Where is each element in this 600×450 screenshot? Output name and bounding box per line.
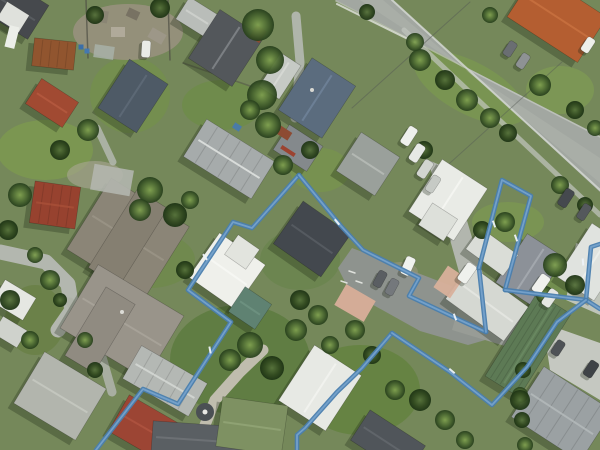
tree <box>321 336 339 354</box>
roof <box>29 181 80 229</box>
tree <box>27 247 43 263</box>
tree <box>8 183 32 207</box>
tree <box>87 362 103 378</box>
tree <box>510 390 530 410</box>
tree <box>77 119 99 141</box>
turret-or-chimney <box>310 88 314 92</box>
car <box>141 40 151 58</box>
aerial-photo <box>0 0 600 450</box>
tree <box>260 356 284 380</box>
tree <box>482 7 498 23</box>
tree <box>409 389 431 411</box>
survey-tick <box>583 259 584 266</box>
tree <box>514 412 530 428</box>
tree <box>435 410 455 430</box>
tree <box>565 275 585 295</box>
turret-or-chimney <box>120 310 124 314</box>
yard-object <box>85 49 90 54</box>
tree <box>308 305 328 325</box>
tree <box>499 124 517 142</box>
tree <box>77 332 93 348</box>
tree <box>129 199 151 221</box>
tree <box>456 89 478 111</box>
tree <box>285 319 307 341</box>
survey-tick <box>209 347 210 354</box>
tree <box>480 108 500 128</box>
tree <box>301 141 319 159</box>
tree <box>50 140 70 160</box>
tree <box>181 191 199 209</box>
tree <box>240 100 260 120</box>
map-viewport[interactable] <box>0 0 600 450</box>
tree <box>237 332 263 358</box>
tree <box>0 290 20 310</box>
tree <box>290 290 310 310</box>
tree <box>163 203 187 227</box>
turret-or-chimney <box>203 410 208 415</box>
roof <box>216 397 288 450</box>
tree <box>219 349 241 371</box>
roof <box>32 38 77 70</box>
tree <box>359 4 375 20</box>
roof-face <box>32 38 77 70</box>
tree <box>176 261 194 279</box>
tree <box>86 6 104 24</box>
yard-object <box>111 27 125 37</box>
tree <box>345 320 365 340</box>
tree <box>456 431 474 449</box>
tree <box>435 70 455 90</box>
tree <box>406 33 424 51</box>
tree <box>566 101 584 119</box>
tree <box>53 293 67 307</box>
tree <box>385 380 405 400</box>
tree <box>409 49 431 71</box>
tree <box>256 46 284 74</box>
tree <box>273 155 293 175</box>
tree <box>255 112 281 138</box>
tree <box>495 212 515 232</box>
tree <box>40 270 60 290</box>
tree <box>529 74 551 96</box>
yard-object <box>93 44 115 60</box>
tree <box>543 253 567 277</box>
yard-object <box>79 45 84 50</box>
tree <box>242 9 274 41</box>
tree <box>21 331 39 349</box>
